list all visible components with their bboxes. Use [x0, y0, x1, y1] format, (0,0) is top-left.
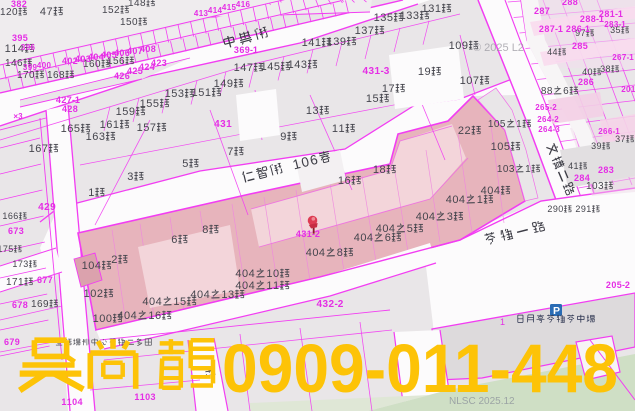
- svg-text:4: 4: [240, 62, 246, 74]
- svg-text:2: 2: [22, 0, 27, 9]
- svg-text:4: 4: [585, 173, 590, 183]
- svg-text:6: 6: [239, 45, 244, 55]
- svg-text:5: 5: [112, 50, 117, 60]
- svg-text:1: 1: [18, 277, 24, 288]
- svg-text:3: 3: [234, 45, 239, 55]
- svg-text:4: 4: [296, 229, 301, 239]
- svg-text:4: 4: [553, 47, 558, 57]
- svg-text:2: 2: [338, 299, 344, 310]
- svg-text:2: 2: [458, 125, 464, 137]
- svg-text:4: 4: [308, 37, 314, 49]
- svg-text:2: 2: [552, 103, 557, 112]
- svg-text:3: 3: [313, 105, 319, 117]
- svg-text:5: 5: [153, 98, 159, 110]
- svg-text:7: 7: [227, 146, 233, 158]
- svg-text:3: 3: [99, 131, 105, 143]
- svg-text:4: 4: [99, 52, 104, 62]
- svg-text:1: 1: [113, 119, 119, 131]
- svg-text:0909-011-448: 0909-011-448: [222, 330, 618, 407]
- svg-text:6: 6: [125, 71, 130, 81]
- svg-text:1: 1: [422, 3, 428, 15]
- svg-text:4: 4: [494, 185, 500, 197]
- svg-text:0: 0: [455, 40, 461, 52]
- svg-text:1: 1: [134, 392, 139, 402]
- svg-text:3: 3: [598, 181, 604, 192]
- svg-text:4: 4: [235, 268, 241, 280]
- svg-text:4: 4: [114, 71, 119, 81]
- svg-text:9: 9: [340, 36, 346, 48]
- svg-text:6: 6: [8, 211, 13, 221]
- svg-text:3: 3: [11, 0, 16, 9]
- svg-text:1: 1: [491, 141, 497, 153]
- svg-text:0: 0: [588, 67, 593, 77]
- svg-text:6: 6: [4, 337, 9, 347]
- svg-text:1: 1: [435, 3, 441, 15]
- svg-text:4: 4: [459, 194, 465, 206]
- svg-text:3: 3: [127, 171, 133, 183]
- svg-text:7: 7: [545, 6, 550, 16]
- svg-text:0: 0: [67, 56, 72, 66]
- svg-text:1: 1: [315, 37, 321, 49]
- svg-text:1: 1: [558, 24, 563, 34]
- svg-text:6: 6: [13, 211, 18, 221]
- svg-text:2: 2: [599, 9, 604, 19]
- svg-text:2: 2: [67, 104, 72, 114]
- svg-text:4: 4: [416, 211, 422, 223]
- svg-text:© 2025 L2: © 2025 L2: [473, 42, 524, 54]
- svg-text:8: 8: [571, 24, 576, 34]
- svg-text:9: 9: [15, 337, 20, 347]
- svg-text:6: 6: [67, 123, 73, 135]
- svg-text:1: 1: [234, 62, 240, 74]
- svg-text:1: 1: [574, 161, 579, 171]
- svg-text:1: 1: [621, 20, 626, 29]
- svg-text:9: 9: [280, 131, 286, 143]
- svg-text:1: 1: [116, 106, 122, 118]
- svg-text:1: 1: [84, 288, 90, 300]
- svg-text:1: 1: [288, 59, 294, 71]
- svg-text:1: 1: [516, 119, 522, 130]
- svg-text:3: 3: [23, 259, 28, 269]
- svg-text:2: 2: [119, 71, 124, 81]
- svg-text:1: 1: [11, 43, 17, 55]
- svg-text:1: 1: [400, 10, 406, 22]
- svg-text:9: 9: [425, 66, 431, 78]
- svg-text:1: 1: [61, 123, 67, 135]
- svg-text:8: 8: [202, 224, 208, 236]
- svg-text:7: 7: [368, 25, 374, 37]
- svg-text:8: 8: [16, 0, 21, 9]
- svg-text:1: 1: [266, 280, 272, 292]
- svg-text:7: 7: [9, 337, 14, 347]
- svg-text:5: 5: [504, 141, 510, 153]
- svg-text:4: 4: [56, 95, 61, 105]
- svg-text:8: 8: [23, 300, 28, 310]
- svg-text:8: 8: [59, 70, 65, 81]
- svg-text:6: 6: [385, 232, 391, 244]
- svg-text:8: 8: [579, 173, 584, 183]
- svg-text:2: 2: [73, 56, 78, 66]
- svg-text:1: 1: [273, 280, 279, 292]
- svg-text:3: 3: [333, 36, 339, 48]
- svg-text:3: 3: [428, 3, 434, 15]
- svg-text:2: 2: [554, 115, 559, 124]
- svg-text:1: 1: [5, 43, 11, 55]
- svg-text:1: 1: [366, 93, 372, 105]
- svg-text:1: 1: [306, 105, 312, 117]
- svg-text:6: 6: [345, 175, 351, 187]
- svg-text:2: 2: [566, 24, 571, 34]
- svg-text:0: 0: [452, 194, 458, 206]
- svg-text:1: 1: [373, 164, 379, 176]
- svg-text:1: 1: [449, 40, 455, 52]
- svg-text:1: 1: [339, 123, 345, 135]
- svg-text:9: 9: [245, 45, 250, 55]
- svg-text:1: 1: [221, 289, 227, 301]
- svg-text:5: 5: [500, 119, 506, 130]
- svg-text:4: 4: [150, 62, 155, 72]
- svg-text:2: 2: [465, 125, 471, 137]
- svg-text:1: 1: [148, 310, 154, 322]
- svg-text:0: 0: [611, 280, 616, 290]
- svg-text:0: 0: [90, 288, 96, 300]
- svg-text:4: 4: [319, 247, 325, 259]
- svg-text:1: 1: [165, 88, 171, 100]
- svg-text:1: 1: [261, 61, 267, 73]
- svg-text:3: 3: [447, 211, 453, 223]
- svg-text:2: 2: [562, 0, 567, 7]
- svg-text:6: 6: [155, 310, 161, 322]
- svg-text:4: 4: [249, 280, 255, 292]
- svg-text:6: 6: [125, 48, 130, 58]
- svg-text:5: 5: [407, 223, 413, 235]
- svg-text:1: 1: [266, 268, 272, 280]
- svg-text:1: 1: [355, 25, 361, 37]
- svg-text:1: 1: [75, 95, 80, 105]
- svg-text:4: 4: [582, 67, 587, 77]
- svg-text:4: 4: [306, 247, 312, 259]
- svg-text:0: 0: [47, 61, 52, 70]
- svg-text:6: 6: [589, 77, 594, 87]
- svg-text:4: 4: [131, 310, 137, 322]
- svg-text:1: 1: [302, 37, 308, 49]
- svg-text:5: 5: [143, 122, 149, 134]
- svg-text:5: 5: [180, 296, 186, 308]
- svg-text:2: 2: [315, 229, 320, 239]
- svg-text:7: 7: [138, 46, 143, 56]
- svg-text:3: 3: [406, 10, 412, 22]
- svg-text:8: 8: [583, 77, 588, 87]
- svg-text:7: 7: [550, 24, 555, 34]
- svg-text:1: 1: [2, 211, 7, 221]
- svg-text:2: 2: [97, 288, 103, 300]
- svg-text:8: 8: [573, 0, 578, 7]
- svg-text:4: 4: [220, 78, 226, 90]
- svg-text:8: 8: [604, 9, 609, 19]
- svg-text:1: 1: [525, 164, 531, 175]
- svg-text:2: 2: [580, 14, 585, 24]
- svg-text:0: 0: [132, 17, 138, 28]
- svg-text:3: 3: [162, 58, 167, 68]
- svg-text:3: 3: [178, 88, 184, 100]
- svg-text:5: 5: [274, 61, 280, 73]
- svg-text:3: 3: [12, 33, 17, 43]
- svg-text:8: 8: [337, 247, 343, 259]
- svg-text:7: 7: [3, 244, 8, 254]
- svg-text:5: 5: [74, 123, 80, 135]
- svg-text:4: 4: [204, 289, 210, 301]
- svg-text:8: 8: [547, 86, 553, 97]
- svg-text:3: 3: [86, 54, 91, 64]
- svg-text:4: 4: [142, 296, 148, 308]
- svg-text:2: 2: [575, 204, 580, 214]
- svg-text:2: 2: [132, 66, 137, 76]
- svg-text:1: 1: [382, 83, 388, 95]
- svg-text:1: 1: [460, 75, 466, 87]
- svg-text:0: 0: [124, 310, 130, 322]
- svg-text:0: 0: [145, 392, 150, 402]
- svg-text:2: 2: [547, 204, 552, 214]
- svg-text:6: 6: [31, 43, 36, 52]
- svg-text:0: 0: [80, 54, 85, 64]
- svg-text:1: 1: [192, 87, 198, 99]
- svg-text:7: 7: [389, 83, 395, 95]
- svg-text:8: 8: [140, 0, 146, 9]
- svg-text:0: 0: [119, 48, 124, 58]
- svg-text:3: 3: [591, 141, 596, 151]
- svg-text:6: 6: [35, 143, 41, 155]
- svg-text:0: 0: [106, 50, 111, 60]
- svg-text:1: 1: [307, 229, 312, 239]
- svg-text:7: 7: [47, 6, 53, 18]
- svg-text:1: 1: [586, 204, 591, 214]
- svg-text:5: 5: [138, 66, 143, 76]
- svg-text:1: 1: [631, 85, 635, 94]
- svg-text:4: 4: [446, 194, 452, 206]
- svg-text:6: 6: [37, 275, 42, 285]
- svg-text:4: 4: [156, 296, 162, 308]
- svg-text:4: 4: [367, 232, 373, 244]
- svg-text:4: 4: [117, 310, 123, 322]
- svg-text:0: 0: [106, 313, 112, 325]
- svg-text:3: 3: [384, 66, 390, 77]
- svg-text:8: 8: [73, 104, 78, 114]
- svg-text:6: 6: [12, 300, 17, 310]
- svg-text:0: 0: [242, 268, 248, 280]
- svg-text:0: 0: [145, 44, 150, 54]
- svg-text:3: 3: [413, 10, 419, 22]
- svg-text:0: 0: [132, 46, 137, 56]
- svg-text:2: 2: [61, 95, 66, 105]
- svg-text:0: 0: [422, 211, 428, 223]
- svg-text:3: 3: [600, 64, 605, 74]
- svg-text:4: 4: [429, 211, 435, 223]
- svg-text:1: 1: [82, 260, 88, 272]
- svg-text:1: 1: [615, 127, 620, 136]
- svg-text:4: 4: [294, 59, 300, 71]
- svg-text:4: 4: [40, 6, 46, 18]
- svg-text:1: 1: [418, 66, 424, 78]
- svg-text:2: 2: [539, 24, 544, 34]
- svg-text:4: 4: [267, 61, 273, 73]
- svg-text:0: 0: [466, 75, 472, 87]
- svg-text:1: 1: [61, 397, 66, 407]
- svg-text:9: 9: [43, 299, 49, 310]
- svg-text:4: 4: [547, 47, 552, 57]
- svg-text:1: 1: [338, 175, 344, 187]
- svg-text:1: 1: [173, 296, 179, 308]
- svg-text:7: 7: [473, 75, 479, 87]
- svg-text:3: 3: [18, 112, 23, 121]
- svg-text:7: 7: [621, 134, 626, 144]
- svg-text:5: 5: [198, 87, 204, 99]
- svg-text:3: 3: [301, 59, 307, 71]
- svg-text:7: 7: [17, 300, 22, 310]
- svg-text:2: 2: [578, 77, 583, 87]
- svg-text:2: 2: [598, 165, 603, 175]
- svg-text:1: 1: [327, 36, 333, 48]
- svg-text:2: 2: [606, 280, 611, 290]
- svg-text:1: 1: [93, 313, 99, 325]
- svg-text:0: 0: [273, 268, 279, 280]
- svg-text:9: 9: [553, 204, 558, 214]
- svg-text:1: 1: [205, 87, 211, 99]
- svg-text:5: 5: [373, 93, 379, 105]
- svg-text:5: 5: [171, 88, 177, 100]
- svg-text:2: 2: [156, 58, 161, 68]
- svg-text:0: 0: [558, 204, 563, 214]
- svg-text:4: 4: [249, 268, 255, 280]
- svg-text:9: 9: [129, 106, 135, 118]
- svg-text:3: 3: [361, 25, 367, 37]
- svg-text:7: 7: [42, 143, 48, 155]
- svg-text:1: 1: [226, 119, 232, 130]
- svg-text:4: 4: [95, 260, 101, 272]
- svg-text:3: 3: [19, 226, 24, 236]
- svg-text:6: 6: [563, 86, 569, 97]
- svg-text:0: 0: [360, 232, 366, 244]
- svg-text:4: 4: [568, 161, 573, 171]
- svg-text:5: 5: [583, 41, 588, 51]
- svg-text:5: 5: [8, 244, 13, 254]
- svg-text:0: 0: [149, 296, 155, 308]
- svg-text:8: 8: [151, 44, 156, 54]
- svg-text:7: 7: [67, 95, 72, 105]
- svg-text:7: 7: [42, 275, 47, 285]
- svg-text:0: 0: [99, 313, 105, 325]
- svg-text:0: 0: [72, 397, 77, 407]
- svg-text:8: 8: [544, 24, 549, 34]
- svg-text:1: 1: [585, 24, 590, 34]
- svg-text:3: 3: [301, 229, 306, 239]
- svg-text:1: 1: [12, 259, 17, 269]
- svg-text:8: 8: [577, 41, 582, 51]
- svg-text:5: 5: [387, 12, 393, 24]
- svg-text:1: 1: [332, 123, 338, 135]
- svg-text:1: 1: [477, 194, 483, 206]
- svg-text:3: 3: [228, 289, 234, 301]
- svg-text:1: 1: [618, 9, 623, 19]
- svg-text:7: 7: [150, 122, 156, 134]
- svg-text:9: 9: [581, 204, 586, 214]
- svg-text:1: 1: [610, 9, 615, 19]
- svg-text:7: 7: [13, 226, 18, 236]
- svg-text:1: 1: [88, 187, 94, 199]
- svg-text:2: 2: [574, 173, 579, 183]
- svg-text:6: 6: [106, 119, 112, 131]
- svg-text:9: 9: [227, 78, 233, 90]
- svg-text:7: 7: [18, 259, 23, 269]
- svg-text:5: 5: [122, 106, 128, 118]
- svg-text:4: 4: [78, 397, 83, 407]
- svg-text:3: 3: [555, 125, 560, 134]
- svg-text:0: 0: [497, 141, 503, 153]
- svg-text:2: 2: [114, 5, 120, 16]
- svg-text:2: 2: [111, 254, 117, 266]
- svg-text:5: 5: [146, 98, 152, 110]
- svg-text:1: 1: [67, 397, 72, 407]
- svg-text:8: 8: [603, 165, 608, 175]
- svg-text:6: 6: [92, 131, 98, 143]
- svg-text:2: 2: [625, 280, 630, 290]
- svg-text:1: 1: [629, 53, 634, 62]
- svg-text:4: 4: [62, 104, 67, 114]
- svg-text:2: 2: [534, 6, 539, 16]
- svg-text:2: 2: [572, 41, 577, 51]
- svg-text:3: 3: [151, 392, 156, 402]
- svg-text:9: 9: [50, 202, 56, 213]
- svg-text:3: 3: [380, 12, 386, 24]
- svg-text:3: 3: [509, 164, 515, 175]
- svg-text:1: 1: [100, 119, 106, 131]
- svg-text:0: 0: [312, 247, 318, 259]
- svg-text:7: 7: [48, 275, 53, 285]
- svg-text:9: 9: [462, 40, 468, 52]
- svg-text:4: 4: [62, 56, 67, 66]
- svg-text:8: 8: [567, 0, 572, 7]
- svg-text:4: 4: [354, 232, 360, 244]
- svg-text:0: 0: [88, 260, 94, 272]
- svg-text:0: 0: [93, 52, 98, 62]
- svg-text:3: 3: [609, 165, 614, 175]
- svg-text:1: 1: [137, 122, 143, 134]
- svg-text:9: 9: [597, 141, 602, 151]
- svg-text:5: 5: [617, 280, 622, 290]
- svg-text:8: 8: [591, 14, 596, 24]
- svg-text:9: 9: [17, 33, 22, 43]
- svg-text:8: 8: [606, 64, 611, 74]
- svg-text:8: 8: [539, 6, 544, 16]
- svg-text:6: 6: [171, 234, 177, 246]
- svg-text:8: 8: [380, 164, 386, 176]
- svg-text:6: 6: [577, 24, 582, 34]
- svg-text:6: 6: [246, 0, 251, 9]
- svg-text:6: 6: [8, 226, 13, 236]
- svg-text:1: 1: [374, 12, 380, 24]
- svg-text:8: 8: [585, 14, 590, 24]
- svg-text:4: 4: [190, 289, 196, 301]
- svg-text:1: 1: [253, 45, 258, 55]
- svg-text:5: 5: [182, 158, 188, 170]
- svg-text:1: 1: [86, 131, 92, 143]
- svg-text:0: 0: [197, 289, 203, 301]
- svg-text:1: 1: [500, 317, 505, 327]
- svg-text:1: 1: [140, 392, 145, 402]
- svg-text:5: 5: [23, 33, 28, 43]
- svg-text:2: 2: [144, 62, 149, 72]
- svg-text:1: 1: [29, 143, 35, 155]
- svg-text:7: 7: [247, 62, 253, 74]
